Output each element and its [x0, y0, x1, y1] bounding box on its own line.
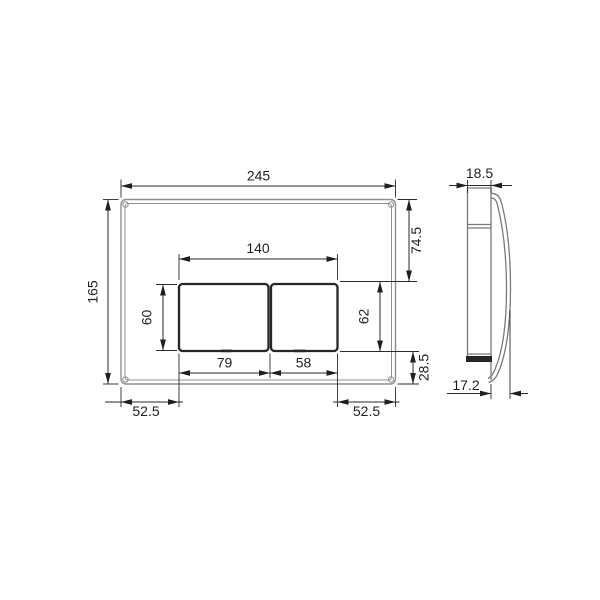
arrowhead-left [338, 399, 349, 405]
dim-button-height: 60 [139, 285, 178, 351]
dim-bottom-left-offset: 52.5 [105, 387, 183, 419]
dim-button-group-width-label: 140 [246, 240, 270, 256]
flush-button-small [271, 284, 338, 351]
dim-small-button-width-label: 58 [296, 355, 312, 371]
dim-bottom-left-offset-label: 52.5 [132, 403, 159, 419]
dim-top-to-buttons: 74.5 [340, 200, 424, 282]
arrowhead-down [160, 340, 166, 351]
dim-overall-width: 245 [121, 168, 396, 198]
dim-top-to-buttons-label: 74.5 [408, 227, 424, 254]
arrowhead-left [179, 370, 190, 376]
dim-frame-depth: 18.5 [449, 165, 512, 193]
arrowhead-up [105, 200, 111, 211]
button-clip-mark-left [221, 350, 232, 353]
arrowhead-inward-right [480, 391, 491, 397]
arrowhead-left [121, 183, 132, 189]
flush-buttons [179, 284, 338, 352]
dim-frame-depth-label: 18.5 [466, 165, 493, 181]
arrowhead-right [327, 256, 338, 262]
arrowhead-up [377, 282, 383, 293]
technical-drawing: 245 165 140 74.5 [0, 0, 600, 600]
arrowhead-center-right [259, 370, 270, 376]
arrowhead-left [179, 256, 190, 262]
dim-overall-height: 165 [85, 200, 119, 385]
arrowhead-right [168, 399, 179, 405]
dim-overall-height-label: 165 [85, 280, 101, 304]
dim-opening-height-label: 62 [356, 309, 372, 325]
dim-large-button-width-label: 79 [217, 355, 233, 371]
arrowhead-inward-left [491, 183, 502, 189]
arrowhead-center-left [270, 370, 281, 376]
arrowhead-up [406, 200, 412, 211]
arrowhead-right [385, 183, 396, 189]
arrowhead-inward-left [510, 391, 521, 397]
arrowhead-inward-right [457, 183, 468, 189]
dim-bottom-right-offset-label: 52.5 [353, 403, 380, 419]
dim-button-group-width: 140 [179, 240, 338, 280]
dim-overall-width-label: 245 [247, 168, 271, 184]
arrowhead-up [160, 285, 166, 296]
arrowhead-down [406, 271, 412, 282]
button-clip-mark-right [294, 350, 306, 353]
arrowhead-right [385, 399, 396, 405]
side-view-profile [466, 188, 511, 383]
arrowhead-right [327, 370, 338, 376]
drawing-canvas: 245 165 140 74.5 [0, 0, 600, 600]
dim-bottom-offset: 28.5 [398, 352, 432, 385]
dim-bottom-right-offset: 52.5 [333, 387, 400, 419]
dim-cover-projection-label: 17.2 [452, 377, 479, 393]
dim-opening-height: 62 [340, 282, 419, 352]
side-bottom-ledge [466, 356, 492, 362]
dim-bottom-offset-label: 28.5 [416, 354, 432, 381]
dim-button-height-label: 60 [139, 310, 155, 326]
arrowhead-down [105, 373, 111, 384]
arrowhead-left [121, 399, 132, 405]
arrowhead-down [377, 341, 383, 352]
flush-button-large [179, 284, 269, 351]
